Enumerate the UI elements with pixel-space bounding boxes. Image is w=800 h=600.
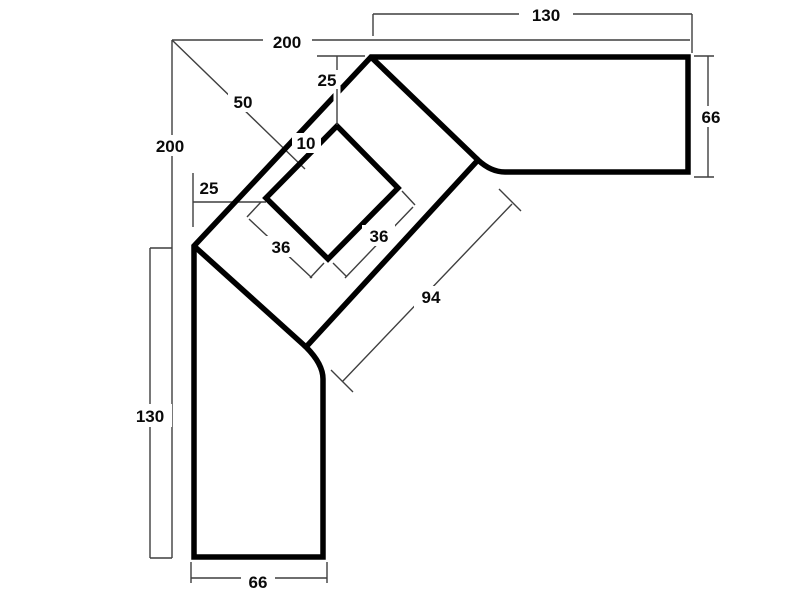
dim-label-top-130: 130	[532, 6, 560, 25]
dim-label-50: 50	[234, 93, 253, 112]
labels-group: 130 200 200 50 25 10 25 36 36 94 66 130 …	[136, 6, 721, 592]
dim-label-10: 10	[297, 134, 316, 153]
dim-label-36-right: 36	[370, 227, 389, 246]
dim-label-right-66: 66	[702, 108, 721, 127]
dim-label-bottom-66: 66	[249, 573, 268, 592]
dimension-drawing: 130 200 200 50 25 10 25 36 36 94 66 130 …	[0, 0, 800, 600]
seam-top	[371, 57, 478, 160]
dim-label-top-200: 200	[273, 33, 301, 52]
dim-label-left-25: 25	[200, 179, 219, 198]
dim-label-left-200: 200	[156, 137, 184, 156]
dim-label-top-25: 25	[318, 71, 337, 90]
drawing-canvas: 130 200 200 50 25 10 25 36 36 94 66 130 …	[0, 0, 800, 600]
dim-label-94: 94	[422, 288, 441, 307]
dim-label-left-130: 130	[136, 407, 164, 426]
dim-line-left-130	[150, 248, 172, 558]
dim-label-36-left: 36	[272, 238, 291, 257]
seam-bottom	[194, 246, 306, 347]
